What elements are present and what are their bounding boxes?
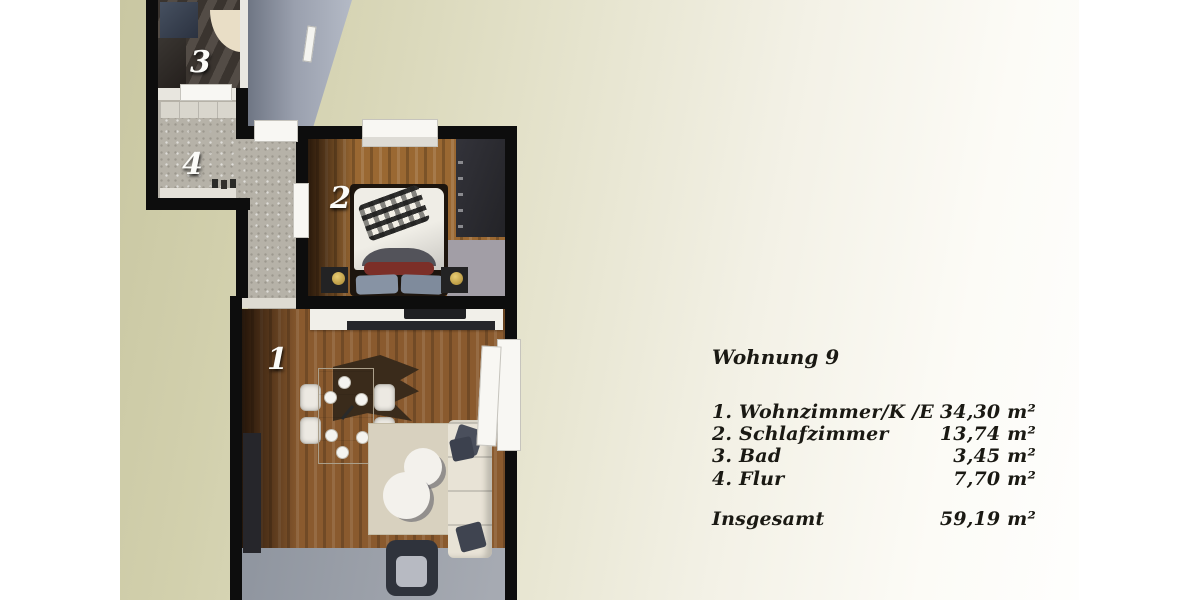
- legend-total-label: Insgesamt: [712, 508, 824, 530]
- bed-pillow-left: [356, 274, 399, 294]
- bed-red-bolster: [364, 262, 434, 275]
- legend-label: 3. Bad: [712, 445, 781, 467]
- legend-value: 7,70 m²: [953, 468, 1036, 490]
- bedroom-window: [362, 119, 438, 147]
- legend-total-value: 59,19 m²: [940, 508, 1036, 530]
- legend-value: 34,30 m²: [940, 401, 1036, 423]
- room-label-bath: 3: [190, 48, 211, 78]
- lamp-right: [450, 272, 463, 285]
- plate: [325, 429, 338, 442]
- corridor-threshold: [242, 298, 296, 308]
- legend-label: 1. Wohnzimmer/K /E: [712, 401, 934, 423]
- room-label-living: 1: [267, 345, 288, 375]
- shoe-shelf: [160, 188, 236, 198]
- room-label-bedroom: 2: [330, 184, 351, 214]
- wall-west-bath-hall: [146, 0, 158, 210]
- bath-vanity: [158, 38, 186, 88]
- tv-sideboard: [243, 433, 261, 553]
- bath-door: [180, 84, 232, 101]
- legend-label: 4. Flur: [712, 468, 784, 490]
- round-side-table-large: [383, 472, 430, 519]
- plate: [324, 391, 337, 404]
- wall-corridor-joint: [236, 88, 248, 139]
- hall-closet: [160, 102, 236, 118]
- wardrobe-hooks: [458, 148, 463, 228]
- plate: [336, 446, 349, 459]
- legend-value: 13,74 m²: [940, 423, 1036, 445]
- armchair-cushion: [396, 556, 427, 587]
- entrance-door: [254, 120, 298, 142]
- legend-row-total: Insgesamt 59,19 m²: [712, 508, 1036, 530]
- sofa-pillow: [449, 436, 475, 462]
- legend-row-bath: 3. Bad 3,45 m²: [712, 445, 1036, 467]
- wall-living-west: [230, 296, 242, 600]
- wall-corridor-west: [236, 198, 248, 308]
- legend-row-hall: 4. Flur 7,70 m²: [712, 468, 1036, 490]
- plate: [338, 376, 351, 389]
- legend: Wohnung 9 1. Wohnzimmer/K /E 34,30 m² 2.…: [712, 345, 1036, 545]
- bath-east-wall-face: [240, 0, 248, 88]
- dining-chair: [374, 384, 395, 411]
- bed-pillow-right: [401, 274, 444, 294]
- apartment-title: Wohnung 9: [712, 345, 839, 369]
- legend-row-living: 1. Wohnzimmer/K /E 34,30 m²: [712, 401, 1036, 423]
- shoes: [230, 179, 236, 188]
- wall-room-divider: [296, 296, 517, 309]
- shoes: [221, 180, 227, 189]
- bedroom-door: [293, 183, 309, 238]
- plate: [355, 393, 368, 406]
- wardrobe: [456, 137, 505, 237]
- legend-label: 2. Schlafzimmer: [712, 423, 889, 445]
- hallway-opening-floor: [236, 139, 248, 198]
- wall-hall-south: [146, 198, 250, 210]
- legend-value: 3,45 m²: [953, 445, 1036, 467]
- lamp-left: [332, 272, 345, 285]
- legend-row-bedroom: 2. Schlafzimmer 13,74 m²: [712, 423, 1036, 445]
- shoes: [212, 179, 218, 188]
- corridor-floor: [248, 139, 296, 310]
- washing-machine: [160, 2, 198, 38]
- counter-front-edge: [347, 321, 495, 330]
- room-label-hall: 4: [182, 150, 203, 180]
- floorplan-page: 1 2 3 4 Wohnung 9 1. Wohnzimmer/K /E 34,…: [0, 0, 1200, 600]
